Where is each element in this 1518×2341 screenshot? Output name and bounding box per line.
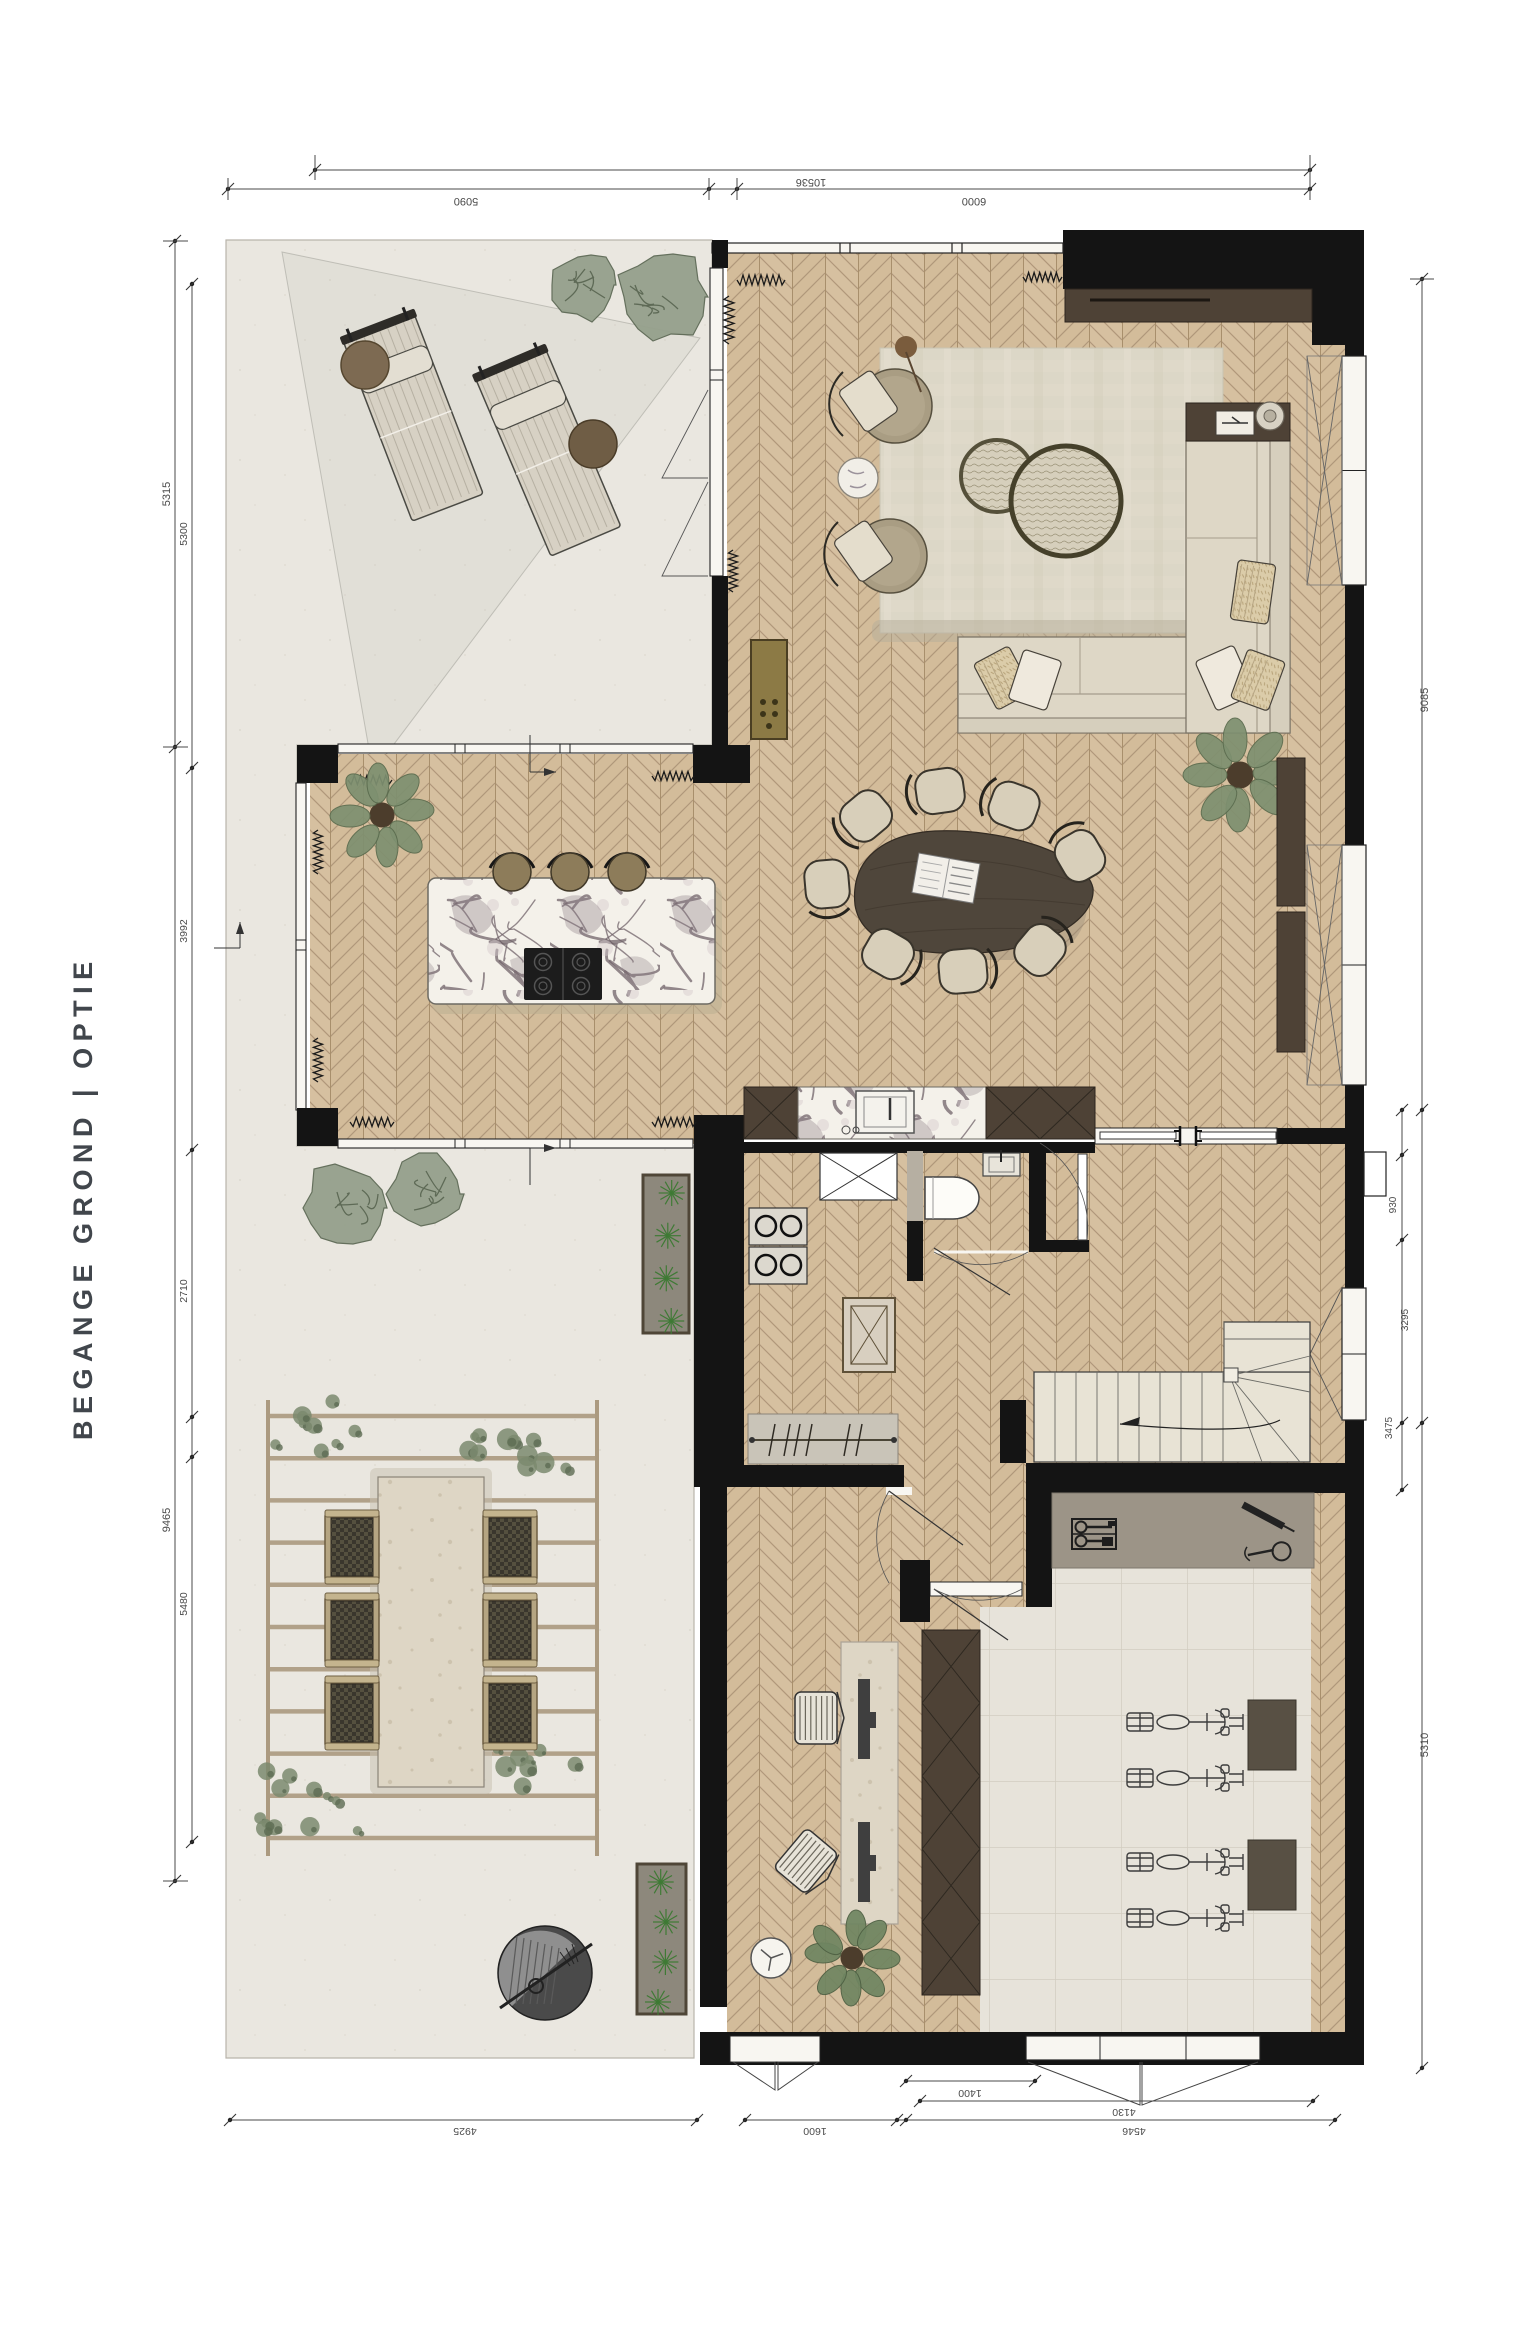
svg-text:9465: 9465: [161, 1508, 173, 1532]
svg-text:2710: 2710: [178, 1279, 190, 1303]
svg-text:5315: 5315: [161, 482, 173, 506]
svg-text:10536: 10536: [796, 176, 827, 188]
svg-text:BEGANGE GROND | OPTIE: BEGANGE GROND | OPTIE: [68, 955, 98, 1440]
svg-text:1400: 1400: [958, 2087, 982, 2099]
svg-text:5300: 5300: [178, 522, 190, 546]
svg-text:1600: 1600: [803, 2125, 827, 2137]
svg-text:9085: 9085: [1419, 688, 1431, 712]
svg-text:5480: 5480: [178, 1592, 190, 1616]
svg-text:5090: 5090: [454, 195, 478, 207]
svg-text:930: 930: [1388, 1196, 1399, 1213]
svg-text:3992: 3992: [178, 919, 190, 943]
svg-text:5310: 5310: [1419, 1733, 1431, 1757]
svg-text:3475: 3475: [1384, 1416, 1395, 1439]
svg-text:4925: 4925: [453, 2125, 477, 2137]
svg-text:4130: 4130: [1112, 2106, 1136, 2118]
svg-text:4546: 4546: [1122, 2125, 1146, 2137]
svg-text:6000: 6000: [962, 195, 986, 207]
svg-text:3295: 3295: [1400, 1308, 1411, 1331]
